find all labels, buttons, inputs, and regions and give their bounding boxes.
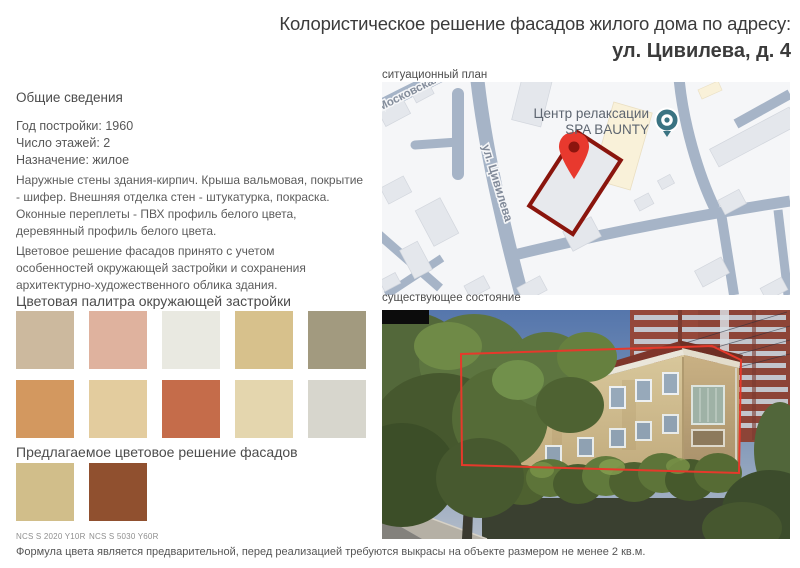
gable-lower-balcony [692, 430, 724, 446]
title-line2: ул. Цивилева, д. 4 [171, 40, 791, 63]
palette-swatch [308, 311, 366, 369]
palette-swatch [235, 380, 293, 438]
fact-purpose: Назначение: жилое [16, 152, 133, 169]
palette-swatch [235, 311, 293, 369]
proposed-heading: Предлагаемое цветовое решение фасадов [16, 444, 298, 460]
palette-swatch [89, 311, 147, 369]
map-heading: ситуационный план [382, 69, 487, 81]
ncs-code-2: NCS S 5030 Y60R [89, 532, 159, 541]
situation-map: Центр релаксации SPA BAUNTY Московская у… [382, 82, 790, 295]
page-title: Колористическое решение фасадов жилого д… [171, 12, 791, 63]
poi-label-line2: SPA BAUNTY [565, 122, 649, 137]
palette-swatch [89, 380, 147, 438]
title-line1: Колористическое решение фасадов жилого д… [171, 12, 791, 36]
palette-swatch [16, 311, 74, 369]
fact-floors: Число этажей: 2 [16, 135, 133, 152]
map-marker-hole [569, 142, 580, 153]
ncs-code-1: NCS S 2020 Y10R [16, 532, 86, 541]
streetview-label-box [382, 310, 429, 324]
building-description: Наружные стены здания-кирпич. Крыша валь… [16, 172, 368, 240]
existing-state-photo [382, 310, 790, 539]
fact-year: Год постройки: 1960 [16, 118, 133, 135]
palette-swatch [308, 380, 366, 438]
footnote: Формула цвета является предварительной, … [16, 546, 796, 558]
building-facts: Год постройки: 1960 Число этажей: 2 Назн… [16, 118, 133, 169]
proposed-swatch [16, 463, 74, 521]
palette-swatch [16, 380, 74, 438]
palette-grid [16, 311, 366, 438]
page: Колористическое решение фасадов жилого д… [0, 0, 800, 568]
palette-heading: Цветовая палитра окружающей застройки [16, 293, 291, 309]
palette-swatch [162, 380, 220, 438]
proposed-swatch [89, 463, 147, 521]
photo-heading: существующее состояние [382, 292, 521, 304]
poi-label-line1: Центр релаксации [534, 106, 649, 121]
proposed-swatches [16, 463, 147, 521]
palette-swatch [162, 311, 220, 369]
general-heading: Общие сведения [16, 90, 123, 105]
context-note: Цветовое решение фасадов принято с учето… [16, 243, 348, 294]
